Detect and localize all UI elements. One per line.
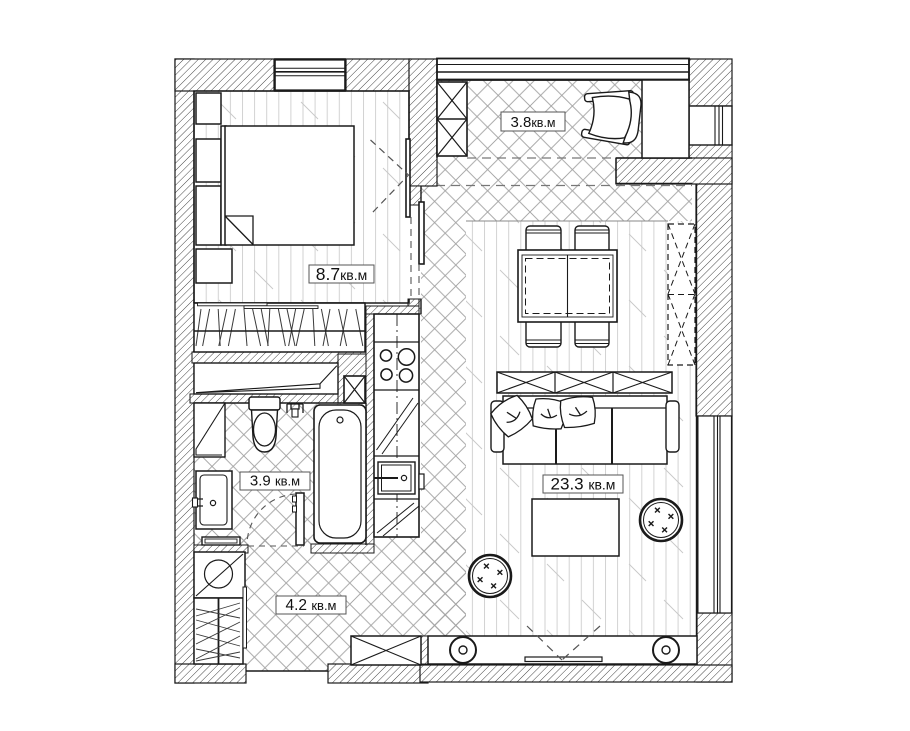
svg-text:3.8кв.м: 3.8кв.м [510,114,555,131]
svg-text:3.9 кв.м: 3.9 кв.м [250,473,300,490]
svg-text:23.3 кв.м: 23.3 кв.м [551,475,616,494]
svg-text:8.7кв.м: 8.7кв.м [316,264,367,284]
svg-text:4.2 кв.м: 4.2 кв.м [285,597,336,614]
